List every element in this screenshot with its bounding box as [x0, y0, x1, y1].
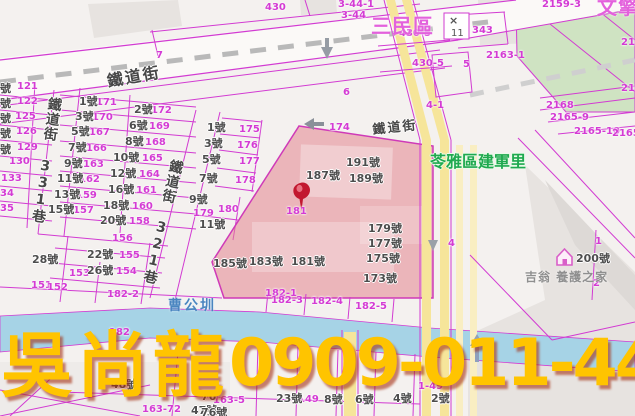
phone-number: 0909-011-448 [229, 326, 635, 401]
lot-number-label: 129 [17, 143, 38, 153]
lot-number-label: 133 [1, 174, 22, 184]
lot-number-label: 130 [9, 157, 30, 167]
lot-number-label: 2168 [546, 101, 574, 111]
lot-number-label: 2165-9 [550, 113, 589, 123]
house-number-label: 20號 [100, 215, 126, 226]
lot-number-label: 152 [47, 283, 68, 293]
lot-number-label: 171 [96, 98, 117, 108]
lot-number-label: 4 [448, 239, 455, 249]
lot-number-label: 161 [136, 186, 157, 196]
house-number-label: 2號 [134, 104, 153, 115]
house-number-label: 76號 [201, 407, 227, 416]
x-marker-icon: × 11 [444, 13, 469, 39]
lot-number-label: 182-5 [355, 302, 387, 312]
house-number-label: 9號 [64, 158, 83, 169]
lot-number-label: 122 [17, 97, 38, 107]
lot-number-label: 180 [218, 205, 239, 215]
house-number-label: 號 [0, 113, 11, 124]
lot-number-label: 169 [149, 122, 170, 132]
lot-number-label: 1 [595, 237, 602, 247]
lot-number-label: 4-1 [426, 101, 444, 111]
svg-text:11: 11 [451, 28, 464, 39]
house-number-label: 11號 [57, 173, 83, 184]
lot-number-label: 121 [17, 82, 38, 92]
district-label: 三民區 [371, 16, 434, 36]
house-number-label: 16號 [108, 184, 134, 195]
lot-number-label: 182-3 [271, 296, 303, 306]
lot-number-label: 157 [73, 206, 94, 216]
house-number-label: 26號 [87, 265, 113, 276]
lot-number-label: 176 [237, 141, 258, 151]
lot-number-label: 178 [235, 176, 256, 186]
lot-number-label: 174 [329, 123, 350, 133]
house-number-label: 11號 [199, 219, 225, 230]
poi-name-label: 吉翁 養護之家 [525, 271, 608, 283]
house-number-label: 7號 [68, 142, 87, 153]
house-number-label: 7號 [199, 173, 218, 184]
lot-number-label: 166 [86, 144, 107, 154]
house-number-label: 173號 [363, 273, 397, 284]
map-viewport[interactable]: × 11 4303-44-13-442159-3430-5343430-5521… [0, 0, 635, 416]
village-label: 苓雅區建軍里 [430, 154, 526, 170]
lot-number-label: 163 [83, 160, 104, 170]
lot-number-label: 343 [472, 26, 493, 36]
house-number-label: 3號 [75, 111, 94, 122]
lot-number-label: 216 [621, 84, 635, 94]
lot-number-label: 125 [15, 112, 36, 122]
house-number-label: 號 [0, 98, 11, 109]
house-number-label: 10號 [113, 152, 139, 163]
house-number-label: 200號 [576, 253, 610, 264]
house-number-label: 177號 [368, 238, 402, 249]
lot-number-label: 430-5 [412, 59, 444, 69]
house-number-label: 15號 [48, 204, 74, 215]
lot-number-label: 175 [239, 125, 260, 135]
house-number-label: 28號 [32, 254, 58, 265]
lot-number-label: 154 [116, 267, 137, 277]
lot-number-label: 5 [463, 60, 470, 70]
lot-number-label: 430 [265, 3, 286, 13]
lot-number-label: 182-2 [107, 290, 139, 300]
lot-number-label: 126 [16, 127, 37, 137]
house-number-label: 191號 [346, 157, 380, 168]
lot-number-label: 160 [132, 202, 153, 212]
watermark-banner: 吳尚龍0909-011-448 [1, 330, 635, 401]
house-number-label: 1號 [207, 122, 226, 133]
lot-number-label: 164 [139, 170, 160, 180]
house-number-label: 179號 [368, 223, 402, 234]
lot-number-label: 177 [239, 157, 260, 167]
lot-number-label: 158 [129, 217, 150, 227]
house-number-label: 181號 [291, 256, 325, 267]
house-number-label: 12號 [110, 168, 136, 179]
house-number-label: 187號 [306, 170, 340, 181]
house-number-label: 175號 [366, 253, 400, 264]
house-number-label: 號 [0, 83, 11, 94]
lot-number-label: 167 [89, 128, 110, 138]
house-number-label: 5號 [71, 126, 90, 137]
lot-number-label: 35 [0, 204, 14, 214]
house-number-label: 6號 [129, 120, 148, 131]
lot-number-label: 34 [0, 189, 14, 199]
house-number-label: 183號 [249, 256, 283, 267]
lot-number-label: 156 [112, 234, 133, 244]
house-number-label: 13號 [54, 189, 80, 200]
lot-number-label: 172 [151, 106, 172, 116]
lot-number-label: 170 [92, 113, 113, 123]
house-number-label: 號 [0, 128, 11, 139]
lot-number-label: 168 [145, 138, 166, 148]
lot-number-label: 6 [343, 88, 350, 98]
house-number-label: 22號 [87, 249, 113, 260]
house-number-label: 189號 [349, 173, 383, 184]
lot-number-label: 2163-1 [486, 51, 525, 61]
lot-number-label: 216 [621, 38, 635, 48]
house-number-label: 185號 [213, 258, 247, 269]
canal-name-label: 曹公圳 [168, 299, 216, 313]
lot-number-label: 2159-3 [542, 0, 581, 10]
house-number-label: 號 [0, 144, 11, 155]
house-number-label: 5號 [202, 154, 221, 165]
lot-number-label: 181 [286, 207, 307, 217]
agent-name: 吳尚龍 [1, 324, 229, 407]
house-number-label: 8號 [125, 136, 144, 147]
house-number-label: 1號 [79, 96, 98, 107]
lot-number-label: 3-44-1 [338, 0, 374, 10]
district-label: 文擎 [597, 0, 635, 17]
house-number-label: 3號 [204, 138, 223, 149]
house-number-label: 9號 [189, 194, 208, 205]
svg-text:×: × [449, 14, 458, 27]
lot-number-label: 2165 [612, 129, 635, 139]
house-number-label: 18號 [103, 200, 129, 211]
lot-number-label: 155 [119, 251, 140, 261]
lot-number-label: 7 [156, 51, 163, 61]
lot-number-label: 165 [142, 154, 163, 164]
lot-number-label: 3-44 [341, 11, 366, 21]
lot-number-label: 182-4 [311, 297, 343, 307]
